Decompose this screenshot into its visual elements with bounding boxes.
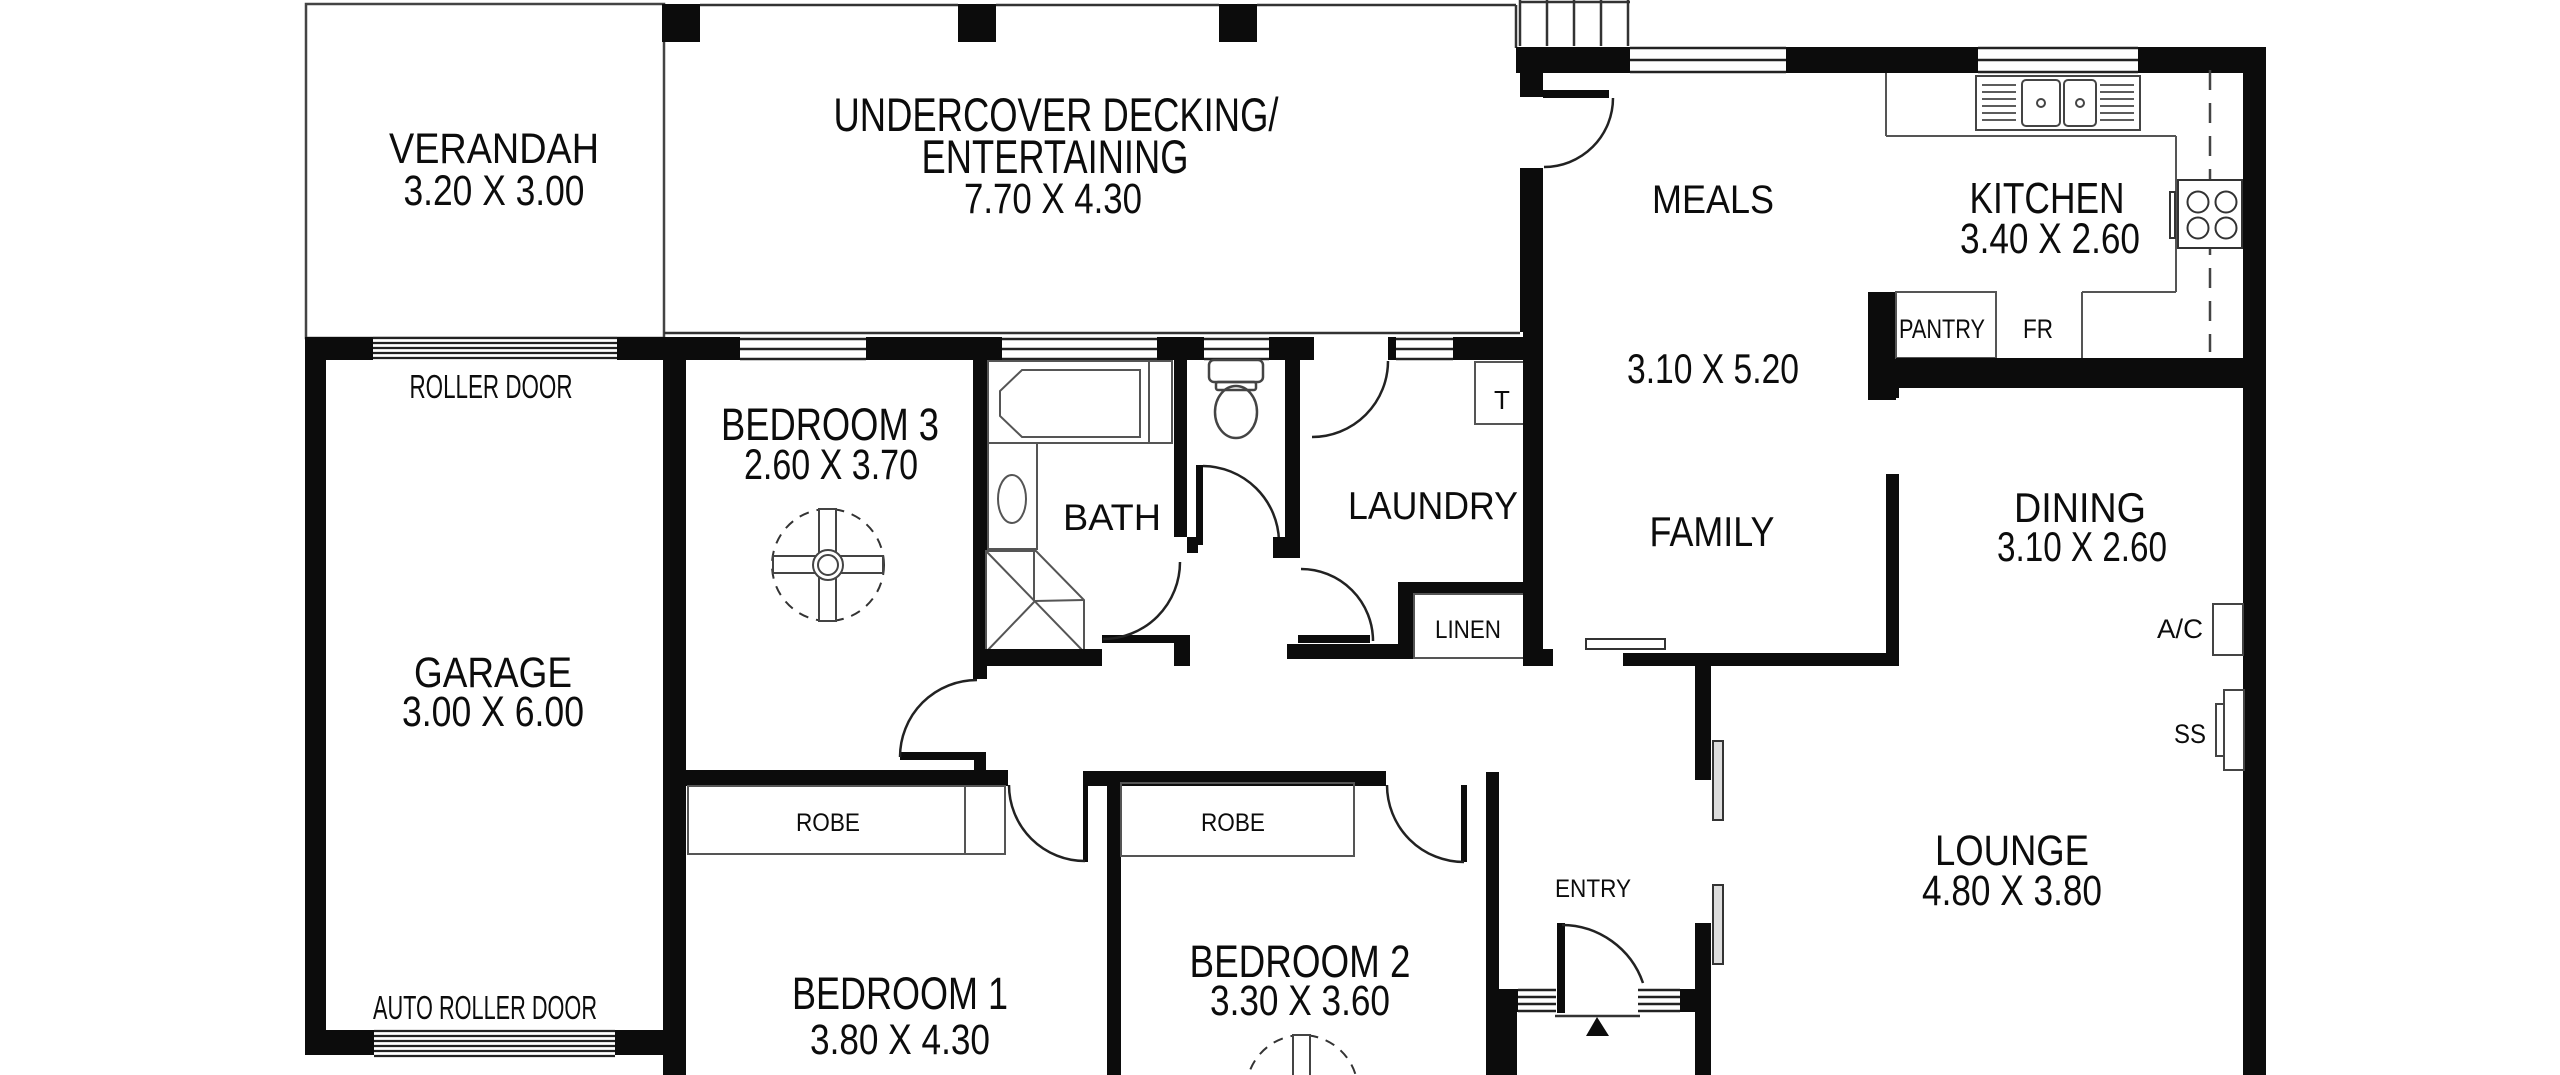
- svg-text:PANTRY: PANTRY: [1899, 314, 1985, 344]
- svg-text:4.80 X 3.80: 4.80 X 3.80: [1922, 867, 2102, 915]
- svg-text:3.20 X 3.00: 3.20 X 3.00: [404, 167, 585, 215]
- svg-text:BEDROOM 1: BEDROOM 1: [792, 968, 1008, 1019]
- svg-text:2.60 X 3.70: 2.60 X 3.70: [744, 441, 918, 489]
- svg-text:ROBE: ROBE: [796, 809, 860, 837]
- svg-text:7.70 X 4.30: 7.70 X 4.30: [964, 175, 1142, 223]
- svg-text:3.10 X 2.60: 3.10 X 2.60: [1997, 523, 2167, 570]
- svg-text:ROBE: ROBE: [1201, 809, 1265, 837]
- svg-text:BATH: BATH: [1063, 497, 1161, 538]
- svg-text:LAUNDRY: LAUNDRY: [1348, 485, 1518, 528]
- svg-text:3.30 X 3.60: 3.30 X 3.60: [1210, 977, 1390, 1025]
- svg-text:3.80 X 4.30: 3.80 X 4.30: [810, 1016, 990, 1064]
- svg-text:3.40 X 2.60: 3.40 X 2.60: [1960, 215, 2140, 263]
- svg-text:AUTO ROLLER DOOR: AUTO ROLLER DOOR: [373, 989, 597, 1026]
- svg-text:ENTRY: ENTRY: [1555, 875, 1631, 903]
- svg-text:LINEN: LINEN: [1435, 616, 1501, 644]
- svg-text:3.00 X 6.00: 3.00 X 6.00: [402, 688, 584, 736]
- svg-text:FAMILY: FAMILY: [1650, 508, 1775, 555]
- svg-text:T: T: [1494, 385, 1510, 415]
- svg-text:A/C: A/C: [2157, 614, 2203, 644]
- svg-text:SS: SS: [2174, 719, 2206, 749]
- svg-text:ROLLER DOOR: ROLLER DOOR: [410, 368, 573, 405]
- svg-text:FR: FR: [2023, 314, 2053, 344]
- svg-text:VERANDAH: VERANDAH: [389, 125, 599, 173]
- svg-text:MEALS: MEALS: [1652, 178, 1774, 222]
- svg-text:3.10 X 5.20: 3.10 X 5.20: [1627, 345, 1799, 392]
